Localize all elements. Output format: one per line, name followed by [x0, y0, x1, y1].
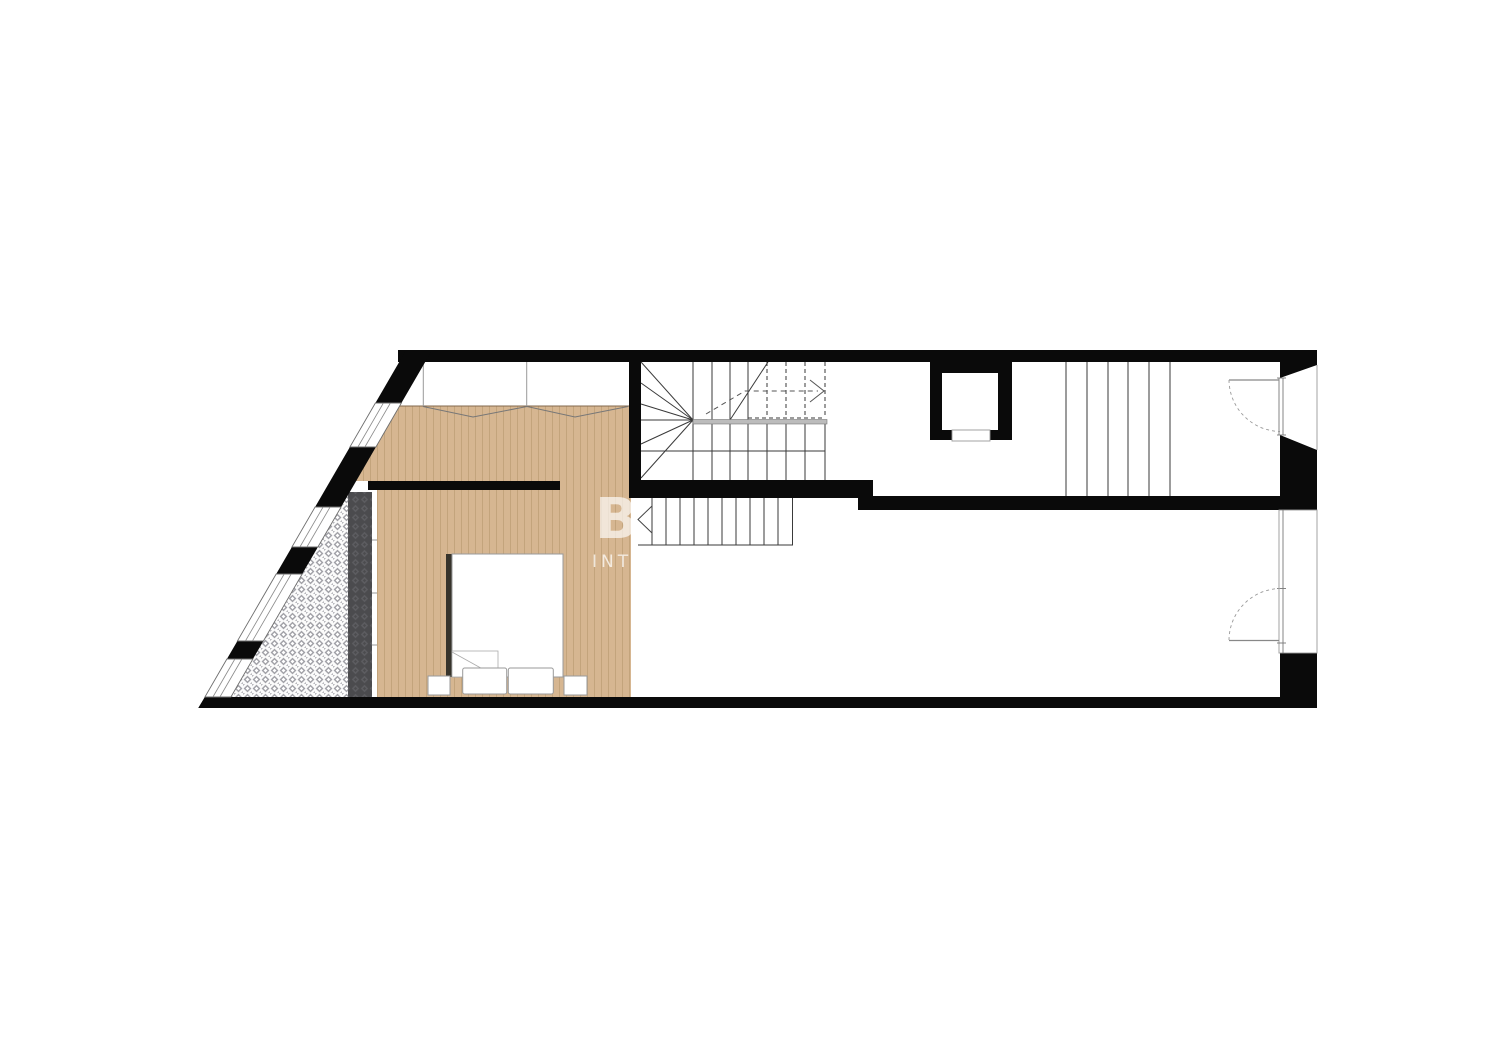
bed-shadow-edge [446, 554, 452, 677]
bedroom-partition-wall [368, 481, 560, 490]
watermark-logo: B [595, 487, 638, 552]
slanted-wall-corner [198, 697, 231, 708]
shaft-opening [952, 430, 990, 441]
shaft-cavity [942, 373, 998, 430]
right-wall-bottom-block [1280, 653, 1317, 708]
shaft [930, 362, 1012, 441]
glazed-wall-section [1279, 510, 1317, 653]
right-wall-mid-block [1280, 435, 1317, 510]
entry-door-swing-arc [1229, 380, 1280, 432]
bed [428, 554, 587, 695]
nightstand-left [428, 676, 450, 695]
watermark: B INTE [592, 487, 647, 572]
threshold-ticks [372, 540, 377, 645]
terrace-door [1229, 589, 1286, 644]
stair-mid-rail [693, 420, 827, 425]
floor-plan-page: B INTE [0, 0, 1500, 1060]
corridor-wall [873, 496, 1280, 510]
right-wall-top-wedge [1280, 362, 1317, 378]
stairwell-left-wall [629, 352, 641, 498]
stairwell-bottom-wall [629, 480, 873, 498]
right-stair-run [1066, 362, 1170, 496]
top-wall [398, 350, 1317, 362]
pillow-left [463, 668, 507, 694]
bottom-wall [198, 697, 1317, 708]
floor-plan-drawing: B INTE [0, 0, 1500, 1060]
watermark-letters: INTE [592, 552, 647, 572]
lower-stair-run [638, 498, 793, 545]
entry-door [1229, 378, 1286, 435]
stair-walking-line [706, 380, 824, 414]
pillow-right [508, 668, 553, 694]
terrace-door-swing-arc [1229, 589, 1280, 641]
stair-down-arrow-icon [638, 506, 652, 533]
corridor-wall-jog [858, 480, 873, 510]
closet-dividers [423, 362, 526, 406]
winder-fan-lines [641, 362, 693, 478]
dark-runner-strip [348, 492, 372, 697]
nightstand-right [564, 676, 587, 695]
slanted-wall-segment-1 [375, 352, 431, 403]
